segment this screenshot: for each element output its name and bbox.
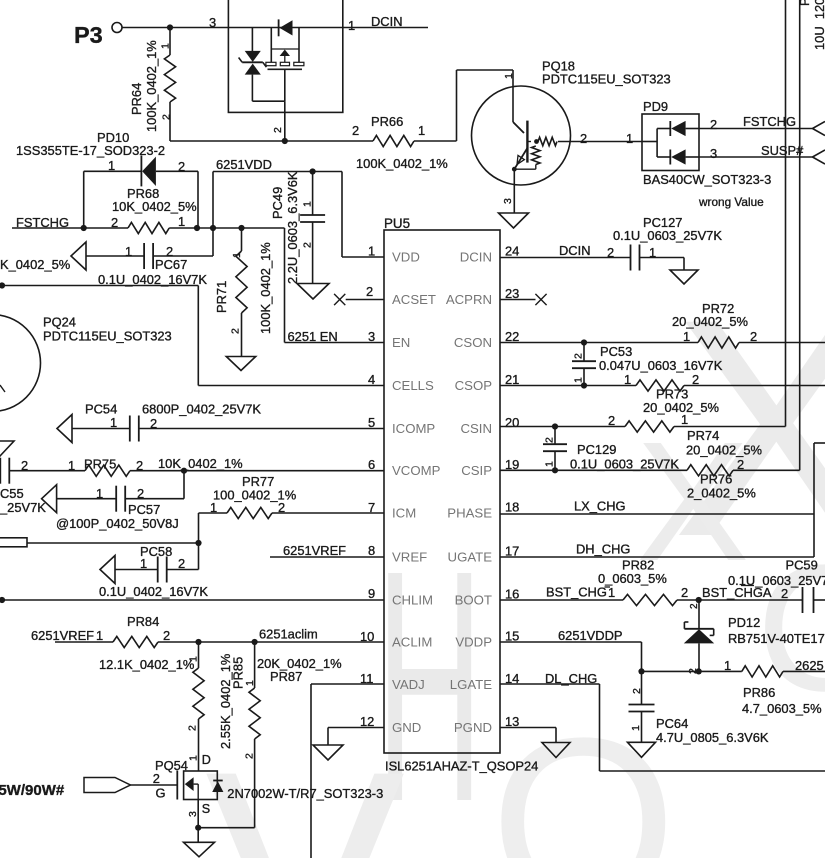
svg-text:1: 1 — [108, 158, 115, 173]
svg-text:0.047U_0603_16V7K: 0.047U_0603_16V7K — [599, 358, 723, 373]
svg-text:1: 1 — [348, 18, 355, 33]
svg-text:K_0402_5%: K_0402_5% — [0, 257, 70, 272]
svg-text:2.55K_0402_1%: 2.55K_0402_1% — [218, 654, 233, 749]
svg-text:PC67: PC67 — [155, 257, 187, 272]
svg-text:2: 2 — [150, 416, 157, 431]
svg-text:20_0402_5%: 20_0402_5% — [672, 314, 748, 329]
svg-text:1: 1 — [544, 461, 556, 467]
svg-text:1: 1 — [188, 755, 200, 761]
svg-text:18: 18 — [505, 500, 519, 515]
svg-text:2_0402_5%: 2_0402_5% — [687, 486, 756, 501]
svg-text:1: 1 — [683, 329, 690, 344]
svg-text:D: D — [202, 753, 211, 767]
svg-text:2: 2 — [178, 556, 185, 571]
svg-text:BAS40CW_SOT323-3: BAS40CW_SOT323-3 — [643, 172, 771, 187]
svg-text:PC129: PC129 — [577, 442, 616, 457]
svg-text:6251 EN: 6251 EN — [288, 329, 338, 344]
svg-text:1: 1 — [724, 658, 731, 673]
svg-text:PR76: PR76 — [700, 472, 732, 487]
svg-text:@100P_0402_50V8J: @100P_0402_50V8J — [56, 516, 179, 531]
svg-text:2625: 2625 — [795, 658, 824, 673]
svg-text:VDD: VDD — [392, 250, 420, 265]
svg-text:LX_CHG: LX_CHG — [574, 499, 626, 514]
svg-text:PR86: PR86 — [743, 685, 775, 700]
svg-text:DL_CHG: DL_CHG — [545, 671, 597, 686]
svg-text:1: 1 — [418, 123, 425, 138]
svg-text:ICM: ICM — [392, 506, 416, 521]
svg-text:1: 1 — [649, 245, 656, 260]
svg-text:CSIP: CSIP — [461, 463, 492, 478]
svg-text:2.2U_0603_6.3V6K: 2.2U_0603_6.3V6K — [285, 171, 300, 284]
svg-text:VDDP: VDDP — [455, 635, 492, 650]
svg-text:2: 2 — [352, 123, 359, 138]
svg-text:2: 2 — [163, 628, 170, 643]
svg-text:3: 3 — [502, 198, 514, 204]
svg-text:_25V7K: _25V7K — [0, 500, 46, 515]
svg-text:1: 1 — [302, 201, 314, 207]
svg-text:2: 2 — [178, 159, 185, 174]
svg-text:2: 2 — [631, 688, 643, 694]
svg-text:2: 2 — [302, 242, 314, 248]
svg-text:6251VREF: 6251VREF — [31, 628, 94, 643]
svg-text:2: 2 — [607, 245, 614, 260]
svg-text:1: 1 — [160, 43, 172, 49]
svg-text:PD12: PD12 — [728, 615, 760, 630]
svg-text:3: 3 — [209, 15, 216, 30]
svg-text:CSIN: CSIN — [460, 421, 492, 436]
svg-text:CHLIM: CHLIM — [392, 593, 433, 608]
svg-text:10: 10 — [360, 629, 374, 644]
svg-text:6251VDDP: 6251VDDP — [558, 628, 623, 643]
svg-text:BOOT: BOOT — [455, 593, 492, 608]
svg-text:DCIN: DCIN — [460, 250, 492, 265]
svg-text:PD9: PD9 — [643, 99, 668, 114]
svg-text:2: 2 — [111, 215, 118, 230]
svg-text:ACPRN: ACPRN — [446, 292, 492, 307]
svg-text:VREF: VREF — [392, 550, 427, 565]
svg-text:2: 2 — [272, 127, 284, 133]
svg-text:1: 1 — [503, 73, 515, 79]
svg-text:1SS355TE-17_SOD323-2: 1SS355TE-17_SOD323-2 — [16, 143, 165, 158]
svg-text:4: 4 — [368, 372, 375, 387]
svg-text:100K_0402_1%: 100K_0402_1% — [144, 40, 159, 132]
svg-text:2: 2 — [187, 725, 199, 731]
svg-text:PDTC115EU_SOT323: PDTC115EU_SOT323 — [43, 329, 172, 344]
svg-text:FSTCHG: FSTCHG — [743, 114, 796, 129]
svg-text:ISL6251AHAZ-T_QSOP24: ISL6251AHAZ-T_QSOP24 — [385, 759, 538, 774]
svg-text:2: 2 — [681, 585, 688, 600]
svg-text:1: 1 — [68, 458, 75, 473]
svg-text:12.1K_0402_1%: 12.1K_0402_1% — [99, 657, 194, 672]
svg-text:VCOMP: VCOMP — [392, 463, 441, 478]
svg-text:RB751V-40TE17: RB751V-40TE17 — [728, 631, 825, 646]
svg-text:20: 20 — [505, 415, 519, 430]
svg-text:V: V — [205, 708, 407, 858]
svg-text:9: 9 — [368, 586, 375, 601]
svg-text:1: 1 — [626, 131, 633, 146]
svg-text:1: 1 — [210, 500, 217, 515]
svg-text:7: 7 — [368, 500, 375, 515]
svg-text:1: 1 — [368, 244, 375, 259]
svg-text:PR75: PR75 — [84, 457, 116, 472]
svg-text:2: 2 — [21, 458, 28, 473]
svg-text:DCIN: DCIN — [371, 14, 403, 29]
svg-text:ICOMP: ICOMP — [392, 421, 435, 436]
svg-text:1: 1 — [608, 585, 615, 600]
svg-text:2: 2 — [544, 437, 556, 443]
svg-text:0.1U_0402_16V7K: 0.1U_0402_16V7K — [99, 584, 208, 599]
svg-text:10K_0402_1%: 10K_0402_1% — [158, 456, 243, 471]
svg-text:SUSP#: SUSP# — [761, 143, 804, 158]
svg-text:6: 6 — [368, 457, 375, 472]
svg-text:PC49: PC49 — [270, 187, 285, 219]
svg-text:3: 3 — [368, 329, 375, 344]
svg-text:1: 1 — [573, 377, 585, 383]
svg-text:1: 1 — [624, 372, 631, 387]
svg-text:P3: P3 — [74, 22, 103, 48]
svg-text:1: 1 — [681, 412, 688, 427]
svg-text:2: 2 — [153, 771, 160, 786]
svg-text:10K_0402_5%: 10K_0402_5% — [112, 199, 197, 214]
svg-text:8: 8 — [368, 543, 375, 558]
svg-text:65W/90W#: 65W/90W# — [0, 782, 65, 799]
svg-text:GND: GND — [392, 720, 421, 735]
svg-text:100K_0402_1%: 100K_0402_1% — [356, 156, 448, 171]
svg-text:PC64: PC64 — [656, 716, 688, 731]
svg-text:0.1U_0603_25V7K: 0.1U_0603_25V7K — [613, 228, 722, 243]
svg-text:1: 1 — [231, 252, 243, 258]
svg-text:2: 2 — [244, 753, 256, 759]
svg-text:2: 2 — [366, 284, 373, 299]
svg-text:2: 2 — [710, 117, 717, 132]
svg-text:1: 1 — [188, 656, 200, 662]
svg-text:2: 2 — [230, 328, 242, 334]
svg-text:10U_1206: 10U_1206 — [812, 0, 825, 50]
svg-text:DCIN: DCIN — [559, 243, 591, 258]
svg-text:6251VREF: 6251VREF — [283, 543, 346, 558]
svg-text:0_0603_5%: 0_0603_5% — [598, 571, 667, 586]
svg-text:2: 2 — [608, 413, 615, 428]
svg-text:ACLIM: ACLIM — [392, 635, 432, 650]
svg-text:2: 2 — [737, 457, 744, 472]
svg-text:11: 11 — [360, 671, 373, 686]
svg-text:3: 3 — [187, 811, 199, 817]
svg-text:1: 1 — [178, 214, 185, 229]
svg-text:20_0402_5%: 20_0402_5% — [686, 443, 762, 458]
svg-text:PC59: PC59 — [786, 558, 818, 573]
svg-text:CELLS: CELLS — [392, 378, 434, 393]
svg-text:CSON: CSON — [454, 335, 492, 350]
svg-text:EN: EN — [392, 335, 410, 350]
svg-text:VADJ: VADJ — [392, 677, 425, 692]
svg-text:2: 2 — [137, 486, 144, 501]
svg-text:ACSET: ACSET — [392, 292, 436, 307]
svg-text:3: 3 — [710, 146, 717, 161]
svg-text:PGND: PGND — [454, 720, 492, 735]
svg-text:1: 1 — [244, 680, 256, 686]
svg-text:100K_0402_1%: 100K_0402_1% — [258, 242, 273, 334]
svg-text:2: 2 — [136, 458, 143, 473]
svg-text:1: 1 — [110, 415, 117, 430]
svg-text:0.1U_0603_25V7: 0.1U_0603_25V7 — [728, 573, 825, 588]
svg-text:6251aclim: 6251aclim — [259, 627, 318, 642]
svg-text:1: 1 — [140, 556, 147, 571]
svg-text:12: 12 — [360, 714, 374, 729]
svg-text:0.1U_0603_25V7K: 0.1U_0603_25V7K — [570, 457, 679, 472]
svg-text:2: 2 — [689, 603, 700, 609]
svg-text:5: 5 — [368, 415, 375, 430]
svg-text:CSOP: CSOP — [455, 378, 493, 393]
svg-text:1: 1 — [125, 244, 132, 259]
svg-text:2: 2 — [781, 586, 788, 601]
svg-text:PC53: PC53 — [600, 344, 632, 359]
svg-text:PC57: PC57 — [128, 502, 160, 517]
svg-text:PU5: PU5 — [384, 216, 410, 231]
svg-text:2N7002W-T/R7_SOT323-3: 2N7002W-T/R7_SOT323-3 — [227, 786, 383, 801]
svg-text:PR87: PR87 — [270, 669, 302, 684]
svg-text:PR66: PR66 — [371, 114, 403, 129]
svg-text:G: G — [156, 786, 166, 801]
svg-text:6800P_0402_25V7K: 6800P_0402_25V7K — [142, 402, 261, 417]
svg-text:PQ24: PQ24 — [43, 315, 76, 330]
svg-text:1: 1 — [630, 725, 642, 731]
svg-text:LGATE: LGATE — [450, 677, 492, 692]
svg-text:wrong Value: wrong Value — [698, 195, 764, 209]
svg-text:2: 2 — [692, 372, 699, 387]
svg-text:1: 1 — [96, 486, 103, 501]
svg-text:PR74: PR74 — [687, 428, 719, 443]
svg-text:6251VDD: 6251VDD — [216, 157, 272, 172]
svg-text:PDTC115EU_SOT323: PDTC115EU_SOT323 — [542, 72, 671, 87]
svg-text:4.7_0603_5%: 4.7_0603_5% — [742, 701, 822, 716]
svg-text:2: 2 — [278, 500, 285, 515]
svg-text:2: 2 — [573, 353, 585, 359]
svg-text:4.7U_0805_6.3V6K: 4.7U_0805_6.3V6K — [656, 730, 769, 745]
svg-text:2: 2 — [750, 329, 757, 344]
svg-text:DH_CHG: DH_CHG — [576, 542, 630, 557]
svg-text:1: 1 — [96, 628, 103, 643]
svg-text:24: 24 — [505, 244, 519, 259]
svg-text:PR71: PR71 — [214, 281, 229, 313]
svg-text:2: 2 — [161, 114, 173, 120]
svg-text:PR64: PR64 — [129, 83, 144, 115]
svg-text:PR84: PR84 — [127, 614, 159, 629]
svg-text:P: P — [797, 0, 812, 6]
svg-text:2: 2 — [580, 131, 587, 146]
svg-text:BST_CHG: BST_CHG — [546, 585, 607, 600]
svg-text:S: S — [202, 802, 210, 816]
svg-text:C55: C55 — [0, 486, 24, 501]
svg-text:PHASE: PHASE — [447, 506, 492, 521]
svg-text:UGATE: UGATE — [448, 550, 493, 565]
